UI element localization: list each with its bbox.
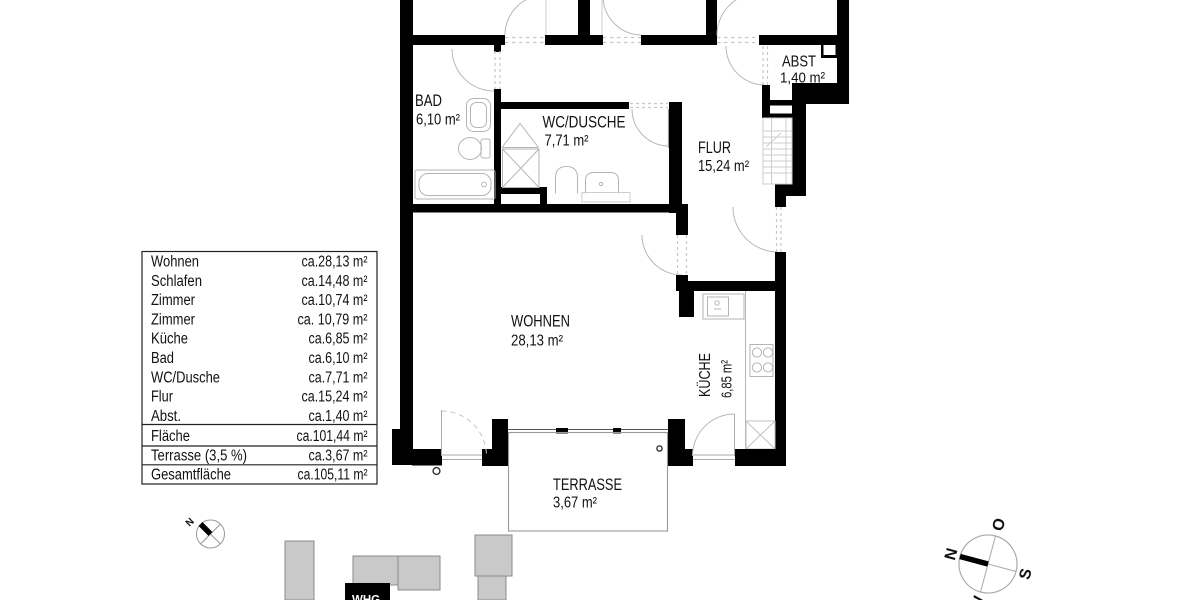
svg-text:Schlafen: Schlafen [151, 273, 202, 290]
svg-text:Flur: Flur [151, 389, 173, 406]
svg-text:WHG: WHG [352, 595, 380, 600]
svg-text:3,67 m²: 3,67 m² [553, 495, 597, 512]
svg-text:ca. 10,79 m²: ca. 10,79 m² [298, 311, 368, 328]
svg-text:6,10 m²: 6,10 m² [416, 112, 460, 129]
svg-text:15,24 m²: 15,24 m² [698, 158, 749, 175]
svg-text:7,71 m²: 7,71 m² [545, 133, 589, 150]
svg-text:Zimmer: Zimmer [151, 292, 195, 309]
svg-text:28,13 m²: 28,13 m² [511, 333, 563, 350]
svg-text:ca.105,11 m²: ca.105,11 m² [298, 467, 368, 484]
svg-text:FLUR: FLUR [698, 139, 731, 157]
svg-text:Wohnen: Wohnen [151, 254, 199, 271]
svg-text:WC/Dusche: WC/Dusche [151, 369, 220, 386]
svg-text:ca.6,85 m²: ca.6,85 m² [309, 331, 368, 348]
svg-text:WOHNEN: WOHNEN [511, 313, 570, 331]
svg-text:ca.101,44 m²: ca.101,44 m² [297, 428, 368, 445]
svg-text:ca.3,67 m²: ca.3,67 m² [309, 447, 368, 464]
svg-text:ca.1,40 m²: ca.1,40 m² [309, 408, 368, 425]
svg-text:ABST: ABST [782, 54, 816, 71]
svg-text:TERRASSE: TERRASSE [553, 476, 622, 494]
svg-text:Terrasse (3,5 %): Terrasse (3,5 %) [151, 447, 247, 464]
svg-text:1,40 m²: 1,40 m² [780, 70, 825, 87]
svg-text:ca.7,71 m²: ca.7,71 m² [309, 369, 368, 386]
svg-text:BAD: BAD [415, 92, 442, 110]
svg-text:Gesamtfläche: Gesamtfläche [151, 467, 231, 484]
svg-text:Abst.: Abst. [151, 408, 181, 425]
svg-text:Zimmer: Zimmer [151, 311, 195, 328]
svg-text:ca.14,48 m²: ca.14,48 m² [302, 273, 368, 290]
svg-text:ca.6,10 m²: ca.6,10 m² [309, 350, 368, 367]
svg-text:ca.28,13 m²: ca.28,13 m² [302, 254, 368, 271]
svg-text:Bad: Bad [151, 350, 174, 367]
svg-text:6,85 m²: 6,85 m² [719, 360, 736, 398]
svg-text:Küche: Küche [151, 331, 188, 348]
svg-text:KÜCHE: KÜCHE [696, 353, 714, 397]
svg-text:Fläche: Fläche [151, 428, 190, 445]
svg-text:ca.15,24 m²: ca.15,24 m² [302, 389, 368, 406]
svg-text:ca.10,74 m²: ca.10,74 m² [302, 292, 368, 309]
svg-text:WC/DUSCHE: WC/DUSCHE [543, 114, 626, 132]
